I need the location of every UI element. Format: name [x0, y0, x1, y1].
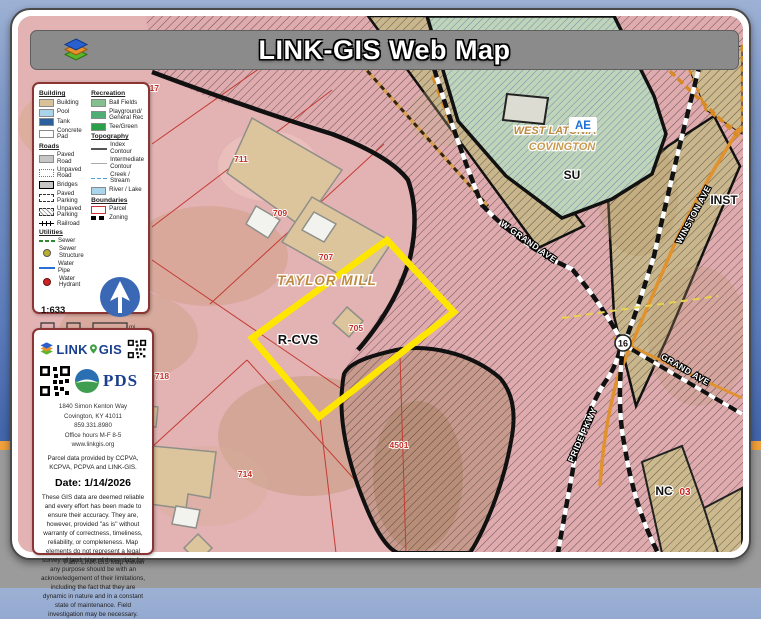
linkgis-logo: LINK GIS [39, 336, 147, 362]
map-label-su: SU [564, 168, 581, 182]
swatch-paved-parking [39, 194, 54, 202]
address-block: 1840 Simon Kenton Way Covington, KY 4101… [39, 402, 147, 450]
address-line: Covington, KY 41011 [39, 412, 147, 422]
linkgis-layers-icon [39, 340, 54, 358]
qr-code-2 [39, 365, 71, 397]
swatch-building [39, 99, 54, 107]
swatch-pool [39, 109, 54, 117]
info-panel: LINK GIS [32, 328, 154, 555]
swatch-sewer [39, 240, 55, 242]
parcel-data-note: Parcel data provided by CCPVA, KCPVA, PC… [39, 455, 147, 473]
building-footprint [503, 94, 548, 124]
swatch-unpaved-road [39, 169, 54, 177]
pds-globe-icon [74, 368, 100, 394]
swatch-river-lake [91, 187, 106, 195]
website: www.linkgis.org [39, 440, 147, 450]
swatch-sewer-structure [43, 249, 51, 257]
disclaimer-text: These GIS data are deemed reliable and e… [39, 493, 147, 619]
legend-header-recreation: Recreation [91, 90, 144, 97]
title-bar: LINK-GIS Web Map [30, 30, 739, 70]
map-label-nc: NC [655, 484, 673, 498]
map-label-taylor-mill: TAYLOR MILL [277, 273, 377, 288]
office-hours: Office hours M-F 8-5 [39, 431, 147, 441]
swatch-intermediate-contour [91, 163, 107, 164]
swatch-playground [91, 111, 106, 119]
legend-header-utilities: Utilities [39, 229, 86, 236]
parcel-number: 4501 [390, 440, 409, 450]
legend-header-building: Building [39, 90, 86, 97]
map-label-inst: INST [710, 193, 738, 207]
legend-header-boundaries: Boundaries [91, 197, 144, 204]
swatch-index-contour [91, 148, 107, 149]
legend-panel: Building Building Pool Tank Concrete Pad… [32, 82, 150, 314]
svg-text:16: 16 [618, 339, 628, 349]
swatch-creek-stream [91, 178, 107, 179]
swatch-paved-road [39, 155, 54, 163]
parcel-number: 03 [679, 487, 691, 498]
map-pin-icon [90, 343, 97, 355]
address-line: 1840 Simon Kenton Way [39, 402, 147, 412]
parcel-number: 718 [155, 371, 169, 381]
pds-logo: PDS [39, 365, 147, 397]
map-label-rcvs: R-CVS [278, 332, 319, 347]
swatch-concrete-pad [39, 130, 54, 138]
phone: 859.331.8980 [39, 421, 147, 431]
legend-header-topography: Topography [91, 133, 144, 140]
swatch-parcel [91, 206, 106, 214]
swatch-ball-fields [91, 99, 106, 107]
parcel-number: 705 [349, 323, 363, 333]
map-export-window: 16 WEST LATONIA COVINGTON TAYLOR MILL AE… [10, 8, 751, 560]
legend-header-roads: Roads [39, 143, 86, 150]
swatch-unpaved-parking [39, 208, 54, 216]
swatch-zoning [91, 216, 106, 220]
route-16-shield: 16 [615, 335, 631, 351]
swatch-railroad [39, 221, 54, 226]
parcel-number: 707 [319, 252, 333, 262]
map-label-covington: COVINGTON [529, 141, 596, 153]
swatch-tank [39, 118, 54, 126]
swatch-water-pipe [39, 267, 55, 269]
north-arrow [98, 275, 142, 319]
map-label-ae: AE [575, 120, 591, 132]
layers-icon [61, 35, 91, 65]
scale-ratio: 1:633 [41, 305, 65, 316]
parcel-number: 711 [234, 154, 248, 164]
path-bar: Path: LINK-GIS Map Viewer [64, 559, 145, 566]
page-title: LINK-GIS Web Map [258, 35, 510, 66]
parcel-number: 714 [238, 469, 252, 479]
parcel-number: 709 [273, 208, 287, 218]
qr-code-1 [127, 336, 147, 362]
map-date: Date: 1/14/2026 [39, 477, 147, 489]
swatch-bridges [39, 181, 54, 189]
swatch-tee-green [91, 123, 106, 131]
swatch-water-hydrant [43, 278, 51, 286]
